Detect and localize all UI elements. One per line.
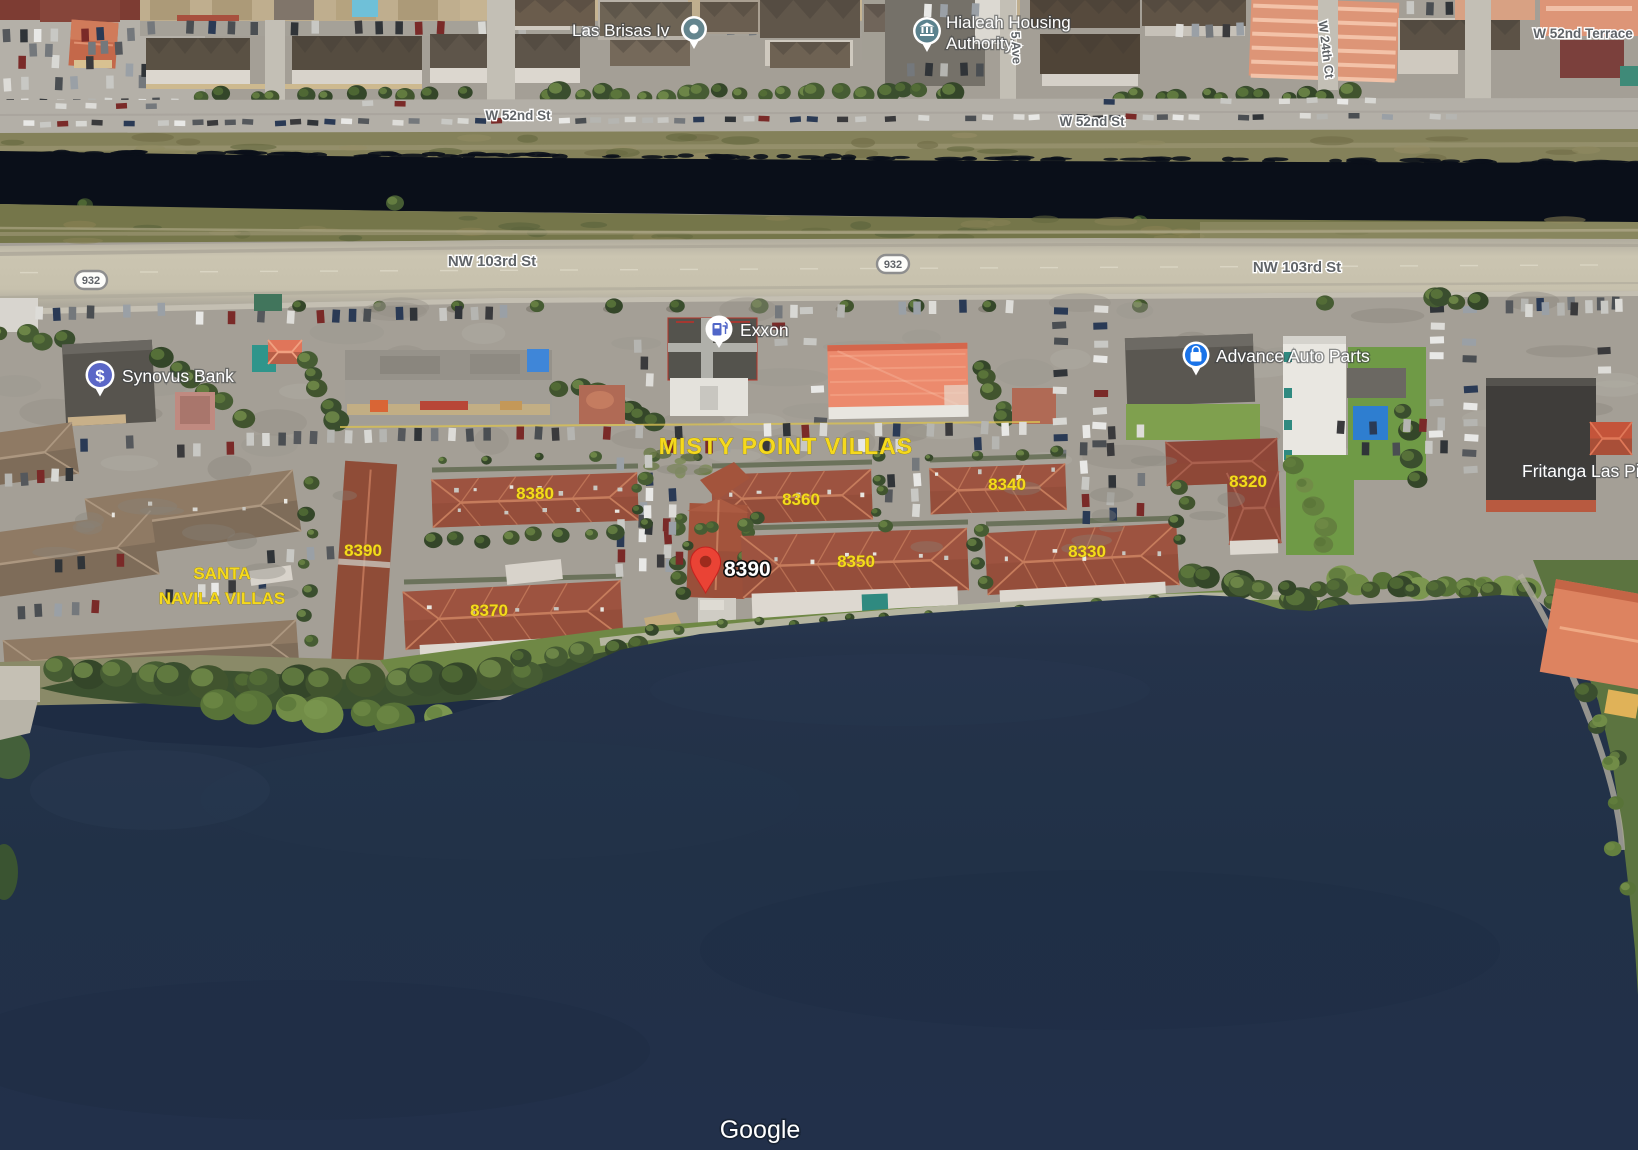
svg-text:Advance Auto Parts: Advance Auto Parts [1216,346,1370,366]
svg-text:8320: 8320 [1229,472,1267,491]
svg-text:8390: 8390 [344,541,382,560]
svg-text:8350: 8350 [837,552,875,571]
svg-text:932: 932 [884,259,902,271]
svg-text:NW 103rd St: NW 103rd St [448,253,536,270]
svg-text:932: 932 [82,275,100,287]
svg-text:8390: 8390 [724,558,771,581]
svg-text:W 52nd St: W 52nd St [485,108,551,123]
svg-text:Google: Google [720,1116,801,1144]
svg-text:Fritanga Las Pi: Fritanga Las Pi [1522,461,1638,481]
svg-text:8370: 8370 [470,601,508,620]
svg-text:Authority: Authority [946,34,1014,53]
svg-text:8360: 8360 [782,490,820,509]
svg-text:W 52nd Terrace: W 52nd Terrace [1533,26,1633,41]
svg-text:Las Brisas Iv: Las Brisas Iv [572,21,670,40]
svg-text:8330: 8330 [1068,542,1106,561]
svg-text:W 52nd St: W 52nd St [1059,114,1125,129]
svg-text:Synovus Bank: Synovus Bank [122,366,234,386]
svg-text:$: $ [95,367,105,386]
svg-text:NW 103rd St: NW 103rd St [1253,259,1341,276]
svg-text:Exxon: Exxon [740,320,789,340]
svg-text:MISTY POINT VILLAS: MISTY POINT VILLAS [659,433,914,459]
svg-text:NAVILA VILLAS: NAVILA VILLAS [159,589,286,608]
svg-text:5 Ave: 5 Ave [1008,31,1024,64]
svg-text:SANTA: SANTA [193,564,250,583]
svg-text:8340: 8340 [988,475,1026,494]
svg-text:8380: 8380 [516,484,554,503]
svg-text:Hialeah Housing: Hialeah Housing [946,13,1071,32]
